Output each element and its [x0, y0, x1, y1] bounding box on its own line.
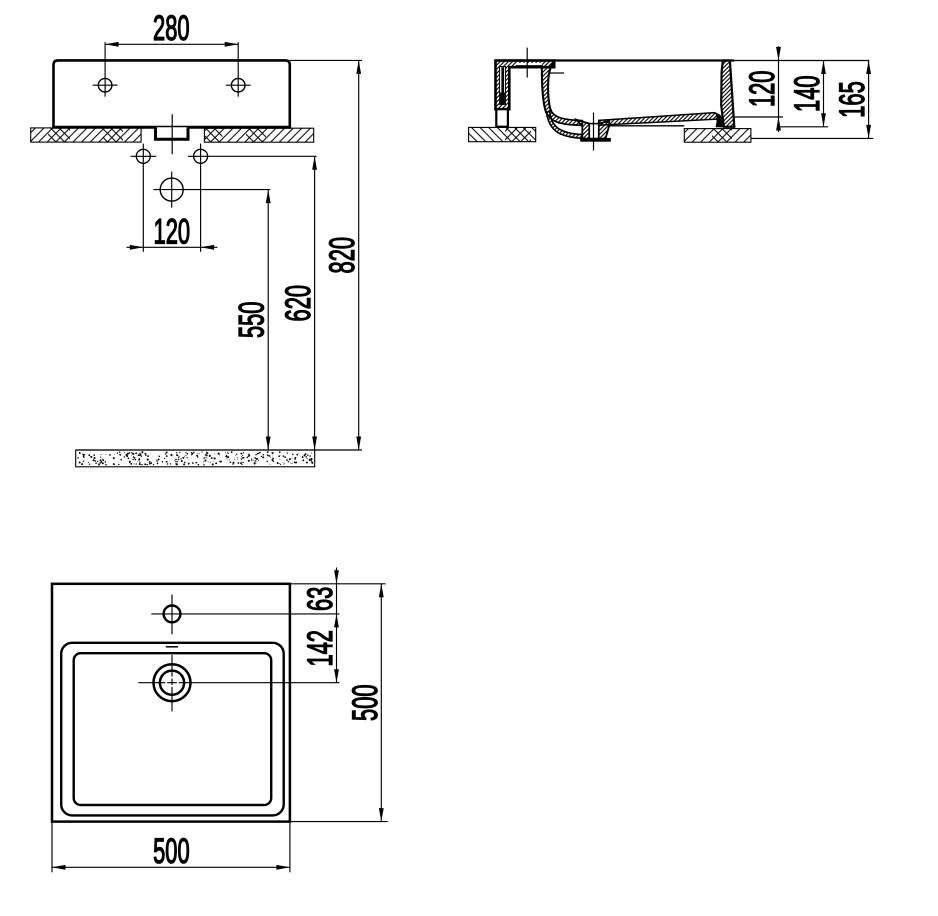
svg-text:500: 500 — [153, 832, 190, 871]
svg-text:120: 120 — [743, 71, 782, 108]
svg-text:140: 140 — [788, 75, 827, 112]
svg-text:63: 63 — [301, 587, 340, 611]
svg-text:165: 165 — [833, 81, 872, 118]
svg-text:620: 620 — [279, 285, 318, 322]
svg-text:142: 142 — [301, 630, 340, 667]
svg-text:280: 280 — [153, 9, 190, 48]
svg-text:120: 120 — [154, 212, 191, 251]
svg-text:500: 500 — [346, 684, 385, 721]
svg-text:820: 820 — [323, 237, 362, 274]
svg-text:550: 550 — [233, 302, 272, 339]
